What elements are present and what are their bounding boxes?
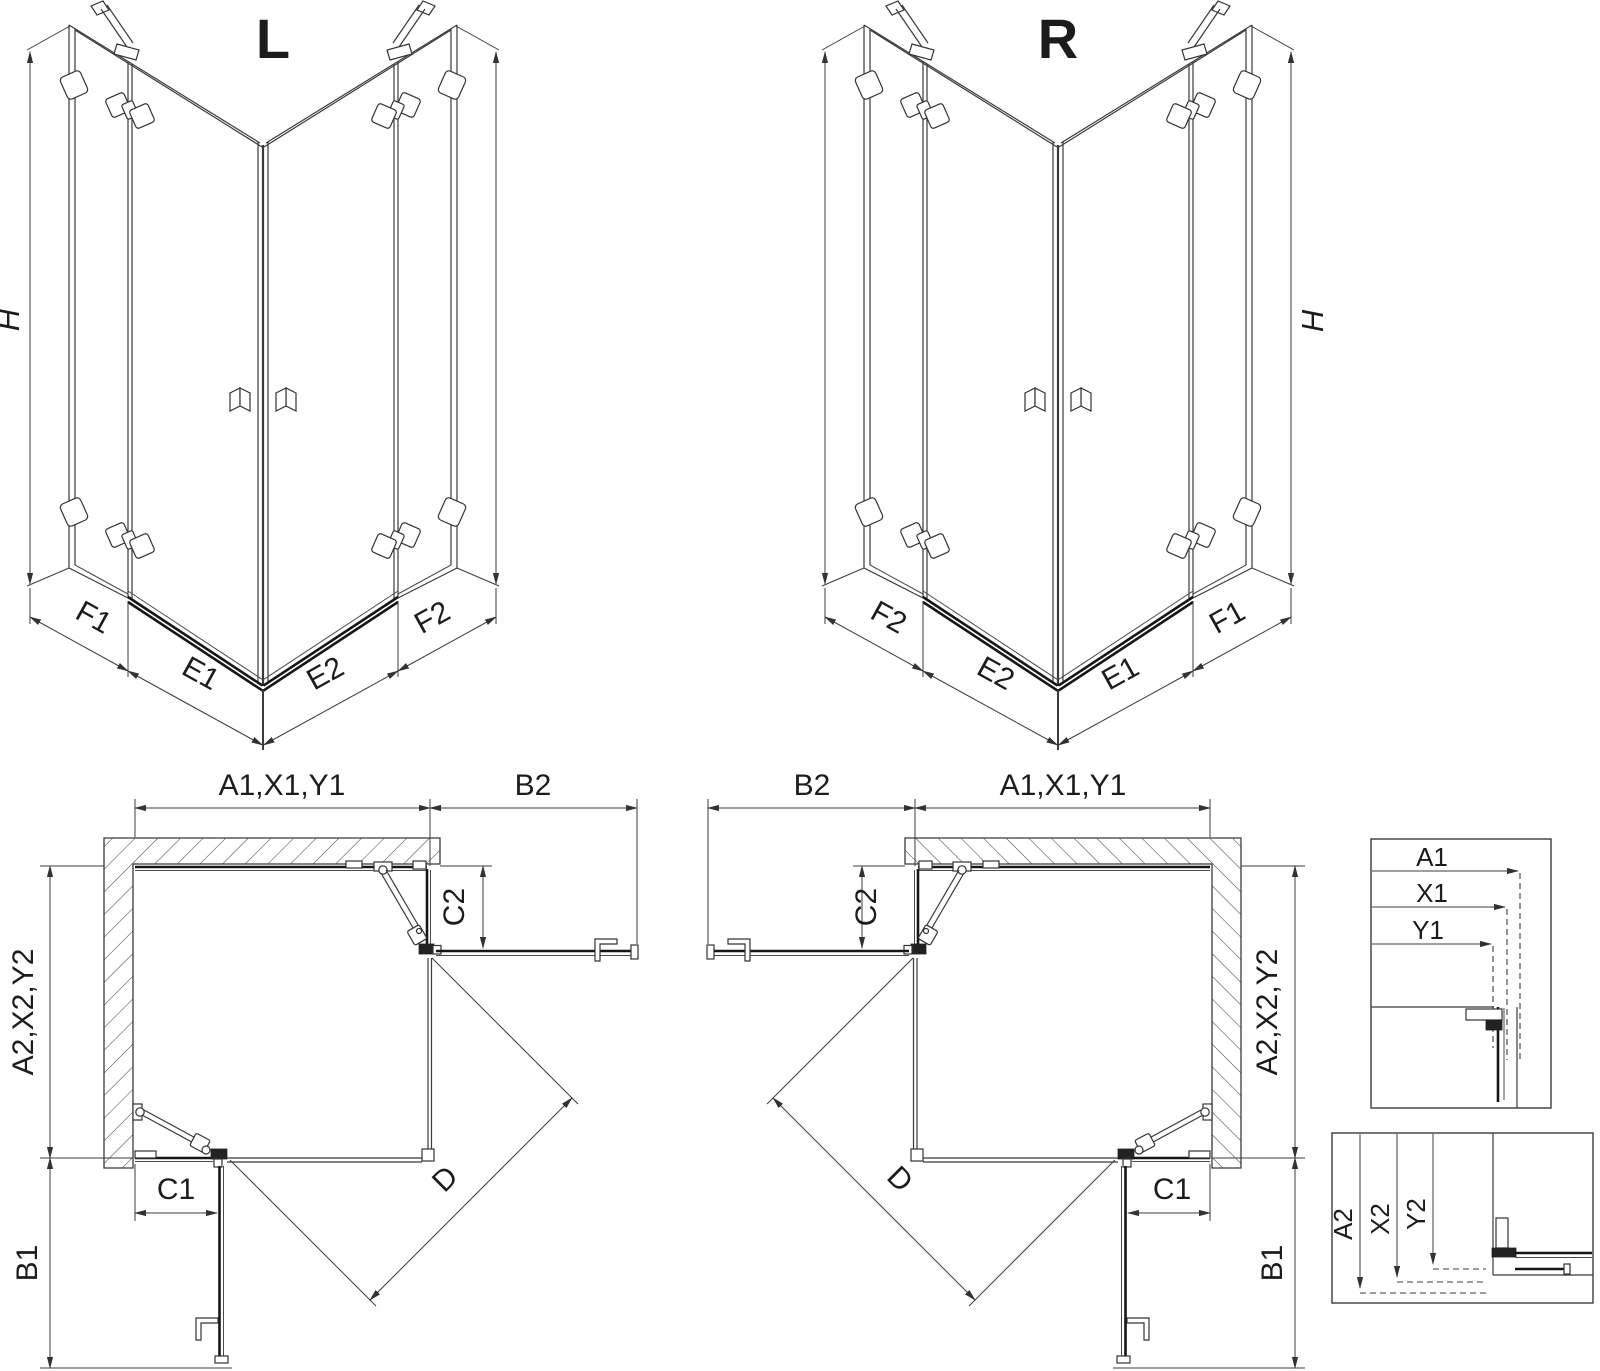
detail-label-a1: A1 xyxy=(1416,842,1448,872)
perspective-view-left: L H F1 E1 E2 F2 xyxy=(0,1,499,750)
detail-label-y1: Y1 xyxy=(1412,915,1444,945)
variant-title-right: R xyxy=(1038,7,1078,70)
dim-label-height: H xyxy=(1295,309,1330,332)
dim-label-a1x1y1: A1,X1,Y1 xyxy=(219,769,346,802)
detail-box-top: A1 X1 Y1 xyxy=(1371,839,1551,1108)
dim-label-c2: C2 xyxy=(438,888,471,926)
detail-label-a2: A2 xyxy=(1328,1208,1358,1240)
dim-label-c1: C1 xyxy=(157,1173,195,1206)
dim-label-b2: B2 xyxy=(794,769,831,802)
dim-label-a2x2y2: A2,X2,Y2 xyxy=(7,949,40,1076)
dim-label-b1: B1 xyxy=(1256,1245,1289,1282)
dim-label-b1: B1 xyxy=(11,1245,44,1282)
detail-label-y2: Y2 xyxy=(1401,1198,1431,1230)
dim-label-a1x1y1: A1,X1,Y1 xyxy=(1000,769,1127,802)
dim-label-f1: F1 xyxy=(1204,595,1251,641)
detail-label-x1: X1 xyxy=(1416,878,1448,908)
dim-label-d: D xyxy=(426,1160,465,1199)
variant-title-left: L xyxy=(256,7,290,70)
dim-label-f1: F1 xyxy=(70,595,117,641)
plan-view-left: A1,X1,Y1 B2 C2 A2,X2,Y2 C1 B1 D xyxy=(7,769,638,1368)
dim-label-d: D xyxy=(880,1160,919,1199)
plan-view-right: A1,X1,Y1 B2 C2 A2,X2,Y2 C1 B1 D xyxy=(707,769,1305,1368)
dim-label-a2x2y2: A2,X2,Y2 xyxy=(1251,949,1284,1076)
perspective-view-right: R H F2 E2 E1 F1 xyxy=(822,1,1330,750)
dim-label-f2: F2 xyxy=(865,595,912,641)
dim-label-f2: F2 xyxy=(409,595,456,641)
detail-box-bottom: A2 X2 Y2 xyxy=(1328,1133,1593,1303)
dim-label-c1: C1 xyxy=(1153,1173,1191,1206)
technical-drawing: L H F1 E1 E2 F2 R H F2 E2 E1 F1 A1,X1,Y1… xyxy=(0,0,1600,1371)
detail-label-x2: X2 xyxy=(1365,1203,1395,1235)
drawing-canvas: L H F1 E1 E2 F2 R H F2 E2 E1 F1 A1,X1,Y1… xyxy=(0,0,1600,1371)
dim-label-b2: B2 xyxy=(515,769,552,802)
dim-label-height: H xyxy=(0,308,26,331)
dim-label-c2: C2 xyxy=(850,888,883,926)
